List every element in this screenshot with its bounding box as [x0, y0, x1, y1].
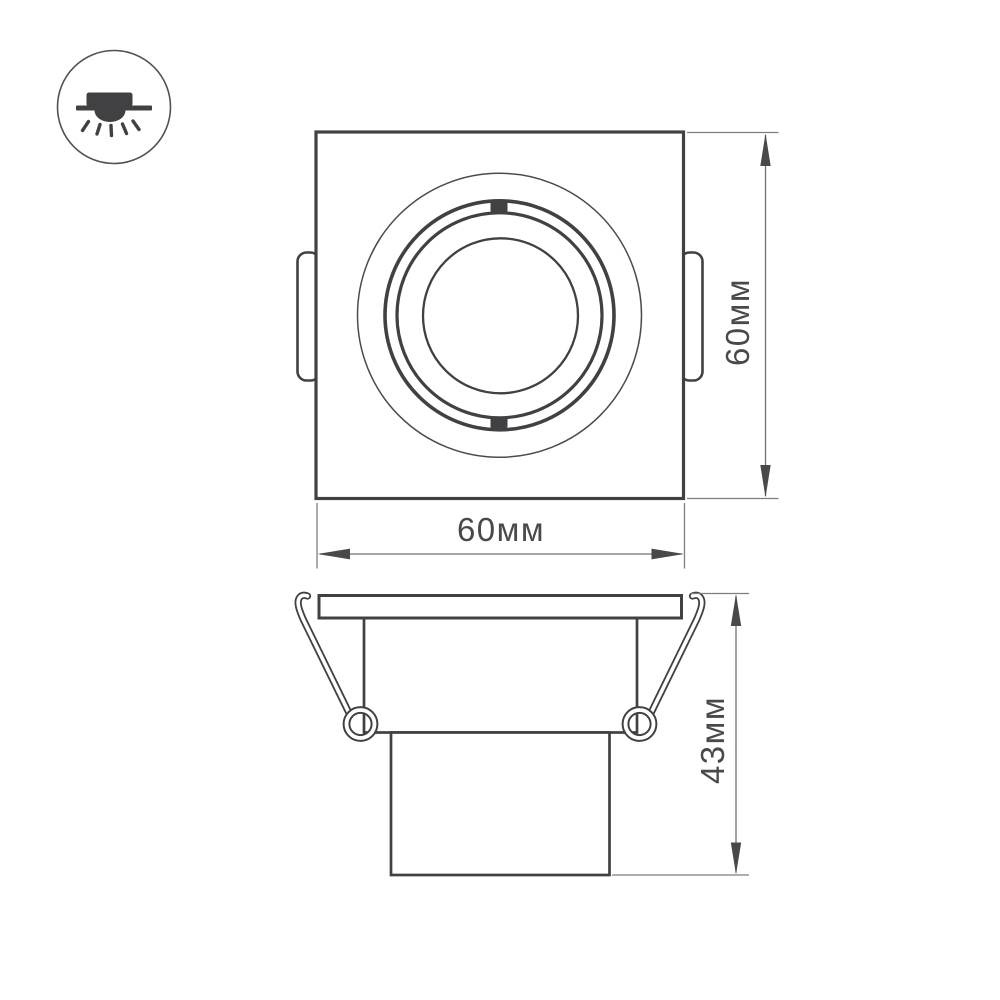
faceplate-side [319, 596, 682, 619]
recessed-body [364, 617, 637, 733]
side-view [298, 595, 702, 875]
heatsink-can [391, 733, 610, 876]
arrowhead-up-icon [760, 134, 770, 167]
icon-fixture-body [87, 93, 133, 107]
arrowhead-down-icon [731, 843, 741, 875]
dimension-label-depth: 43мм [694, 696, 731, 784]
gimbal-pivot-tab-bottom [491, 418, 508, 428]
arrowhead-right-icon [652, 549, 685, 560]
icon-ceiling-line [76, 106, 152, 111]
arrowhead-left-icon [318, 549, 351, 560]
arrowhead-up-icon [731, 594, 741, 626]
arrowhead-down-icon [760, 465, 770, 498]
faceplate-square [316, 132, 684, 499]
gimbal-pivot-tab-top [491, 202, 508, 212]
downlight-dimension-drawing: 60мм 60мм [0, 0, 1000, 1000]
dimension-label-height: 60мм [719, 278, 756, 366]
recessed-downlight-icon [58, 51, 171, 164]
top-view [298, 132, 703, 499]
technical-drawing-page: 60мм 60мм [0, 0, 1000, 1000]
dimension-top-view-width: 60мм [317, 503, 685, 569]
dimension-label-width: 60мм [457, 511, 545, 548]
